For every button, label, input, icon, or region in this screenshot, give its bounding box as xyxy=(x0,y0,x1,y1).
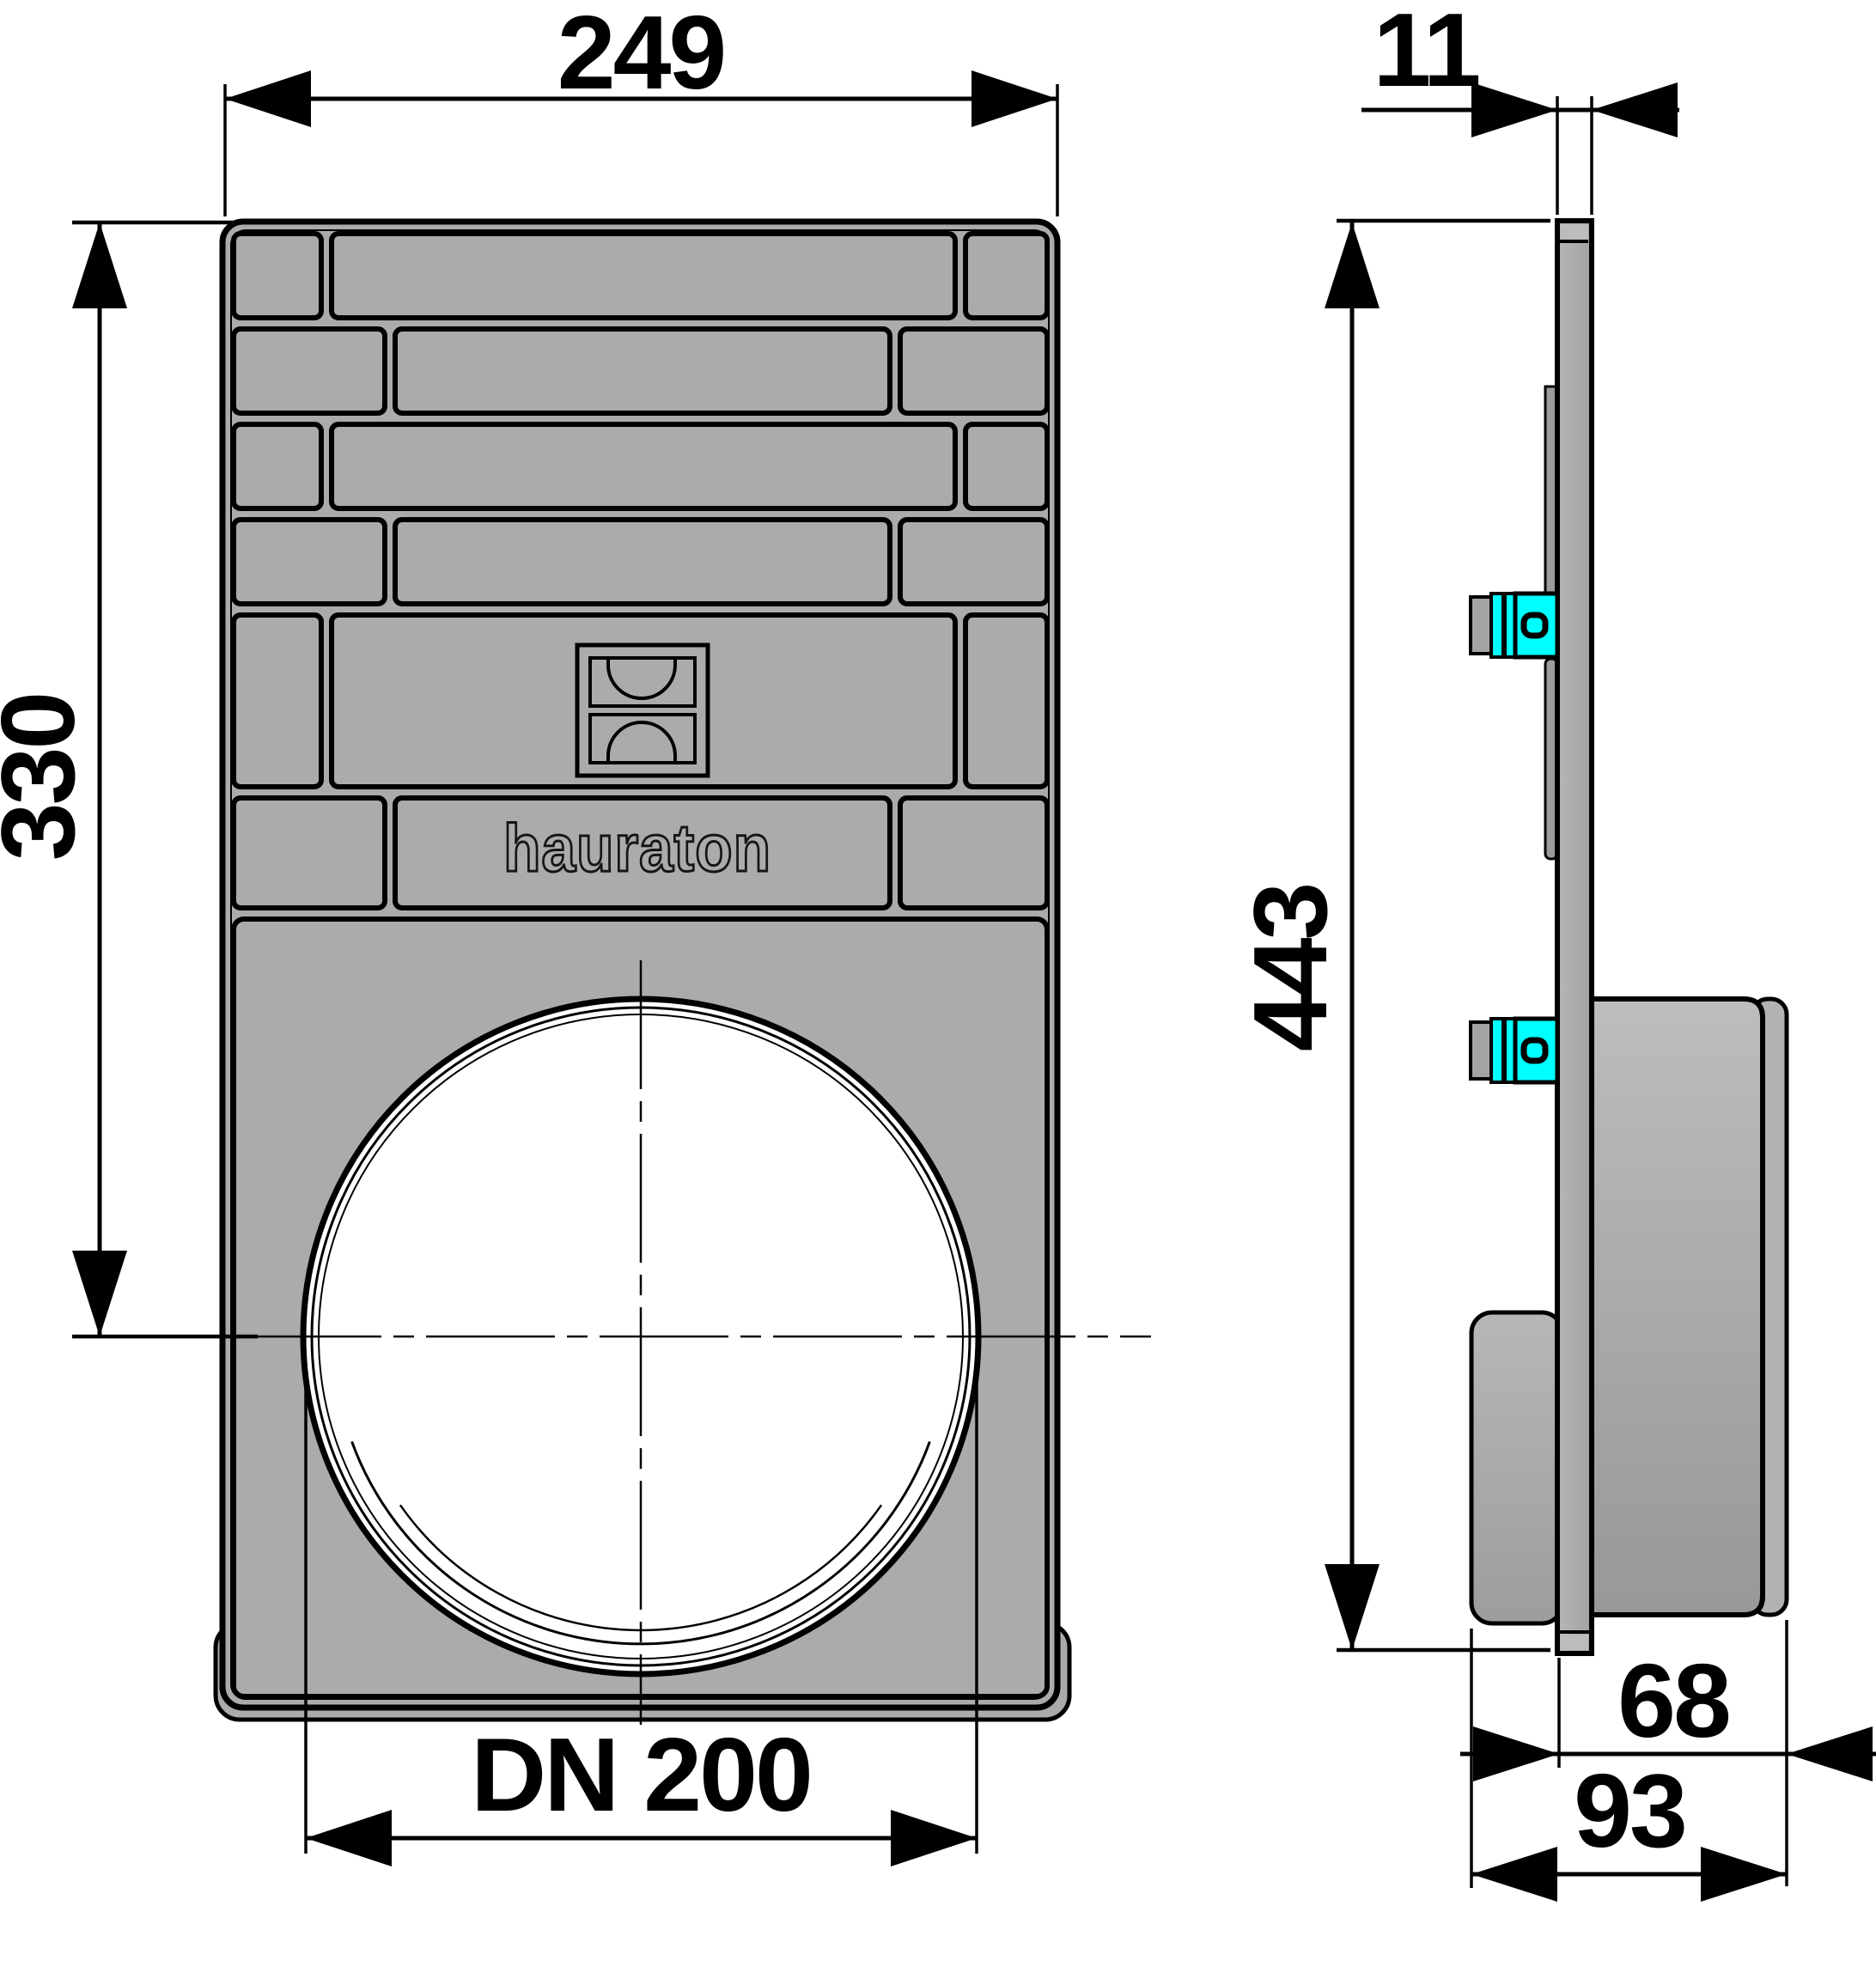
arrow-left-icon xyxy=(306,1810,392,1866)
rib-cell xyxy=(234,234,321,318)
arrow-left-icon xyxy=(1471,1847,1557,1902)
rib-cell xyxy=(234,520,385,604)
clip-hole xyxy=(1524,615,1545,636)
rib-cell xyxy=(234,424,321,508)
clip-hole xyxy=(1524,1040,1545,1061)
dim-label-front-width: 249 xyxy=(557,0,725,111)
rib-cell xyxy=(332,424,955,508)
arrow-right-icon xyxy=(891,1810,977,1866)
arrow-left-icon xyxy=(225,70,311,127)
side-plate-top-cap xyxy=(1561,224,1588,240)
side-plate xyxy=(1557,221,1592,1653)
clip-spring-leaf xyxy=(1491,594,1503,657)
dim-height-to-center: 330 xyxy=(0,222,258,1337)
arrow-left-icon xyxy=(1787,1726,1873,1781)
arrow-down-icon xyxy=(72,1251,127,1337)
outlet-socket xyxy=(1592,999,1763,1615)
rib-cell xyxy=(965,615,1047,787)
rib-cell xyxy=(332,234,955,318)
dim-label-socket-depth: 68 xyxy=(1617,1642,1729,1759)
brand-logo-text: hauraton xyxy=(503,810,771,886)
rib-cell xyxy=(234,615,321,787)
rib-cell xyxy=(395,520,890,604)
arrow-up-icon xyxy=(72,222,127,308)
rib-cell xyxy=(234,798,385,908)
arrow-left-icon xyxy=(1592,82,1678,137)
rib-cell xyxy=(395,329,890,413)
dim-label-outlet-diameter: DN 200 xyxy=(471,1716,811,1833)
dim-label-plate-thickness: 11 xyxy=(1373,0,1479,108)
fixing-clip-top xyxy=(1471,594,1557,657)
arrow-up-icon xyxy=(1325,222,1380,308)
rib-cell xyxy=(965,424,1047,508)
arrow-right-icon xyxy=(1473,1726,1559,1781)
side-view xyxy=(1471,221,1787,1653)
fixing-clip-bottom xyxy=(1471,1019,1557,1082)
arrow-right-icon xyxy=(971,70,1057,127)
rib-cell xyxy=(234,329,385,413)
arrow-right-icon xyxy=(1471,82,1557,137)
clip-spring-leaf xyxy=(1491,1019,1503,1082)
dim-front-width: 249 xyxy=(225,0,1057,216)
rib-cell xyxy=(900,329,1047,413)
dim-label-total-depth: 93 xyxy=(1574,1752,1685,1869)
technical-drawing-sheet: hauraton xyxy=(0,0,1876,1979)
side-plate-bottom-cap xyxy=(1561,1635,1588,1650)
arrow-down-icon xyxy=(1325,1564,1380,1650)
rib-cell xyxy=(965,234,1047,318)
dim-label-height-to-center: 330 xyxy=(0,694,96,862)
front-view: hauraton xyxy=(79,222,1151,1725)
dim-plate-thickness: 11 xyxy=(1361,0,1679,215)
bottom-bracket xyxy=(1471,1312,1562,1623)
dim-label-total-height: 443 xyxy=(1232,885,1349,1052)
rib-cell xyxy=(900,520,1047,604)
drawing-canvas: hauraton xyxy=(0,0,1876,1979)
rib-cell xyxy=(900,798,1047,908)
arrow-right-icon xyxy=(1701,1847,1787,1902)
